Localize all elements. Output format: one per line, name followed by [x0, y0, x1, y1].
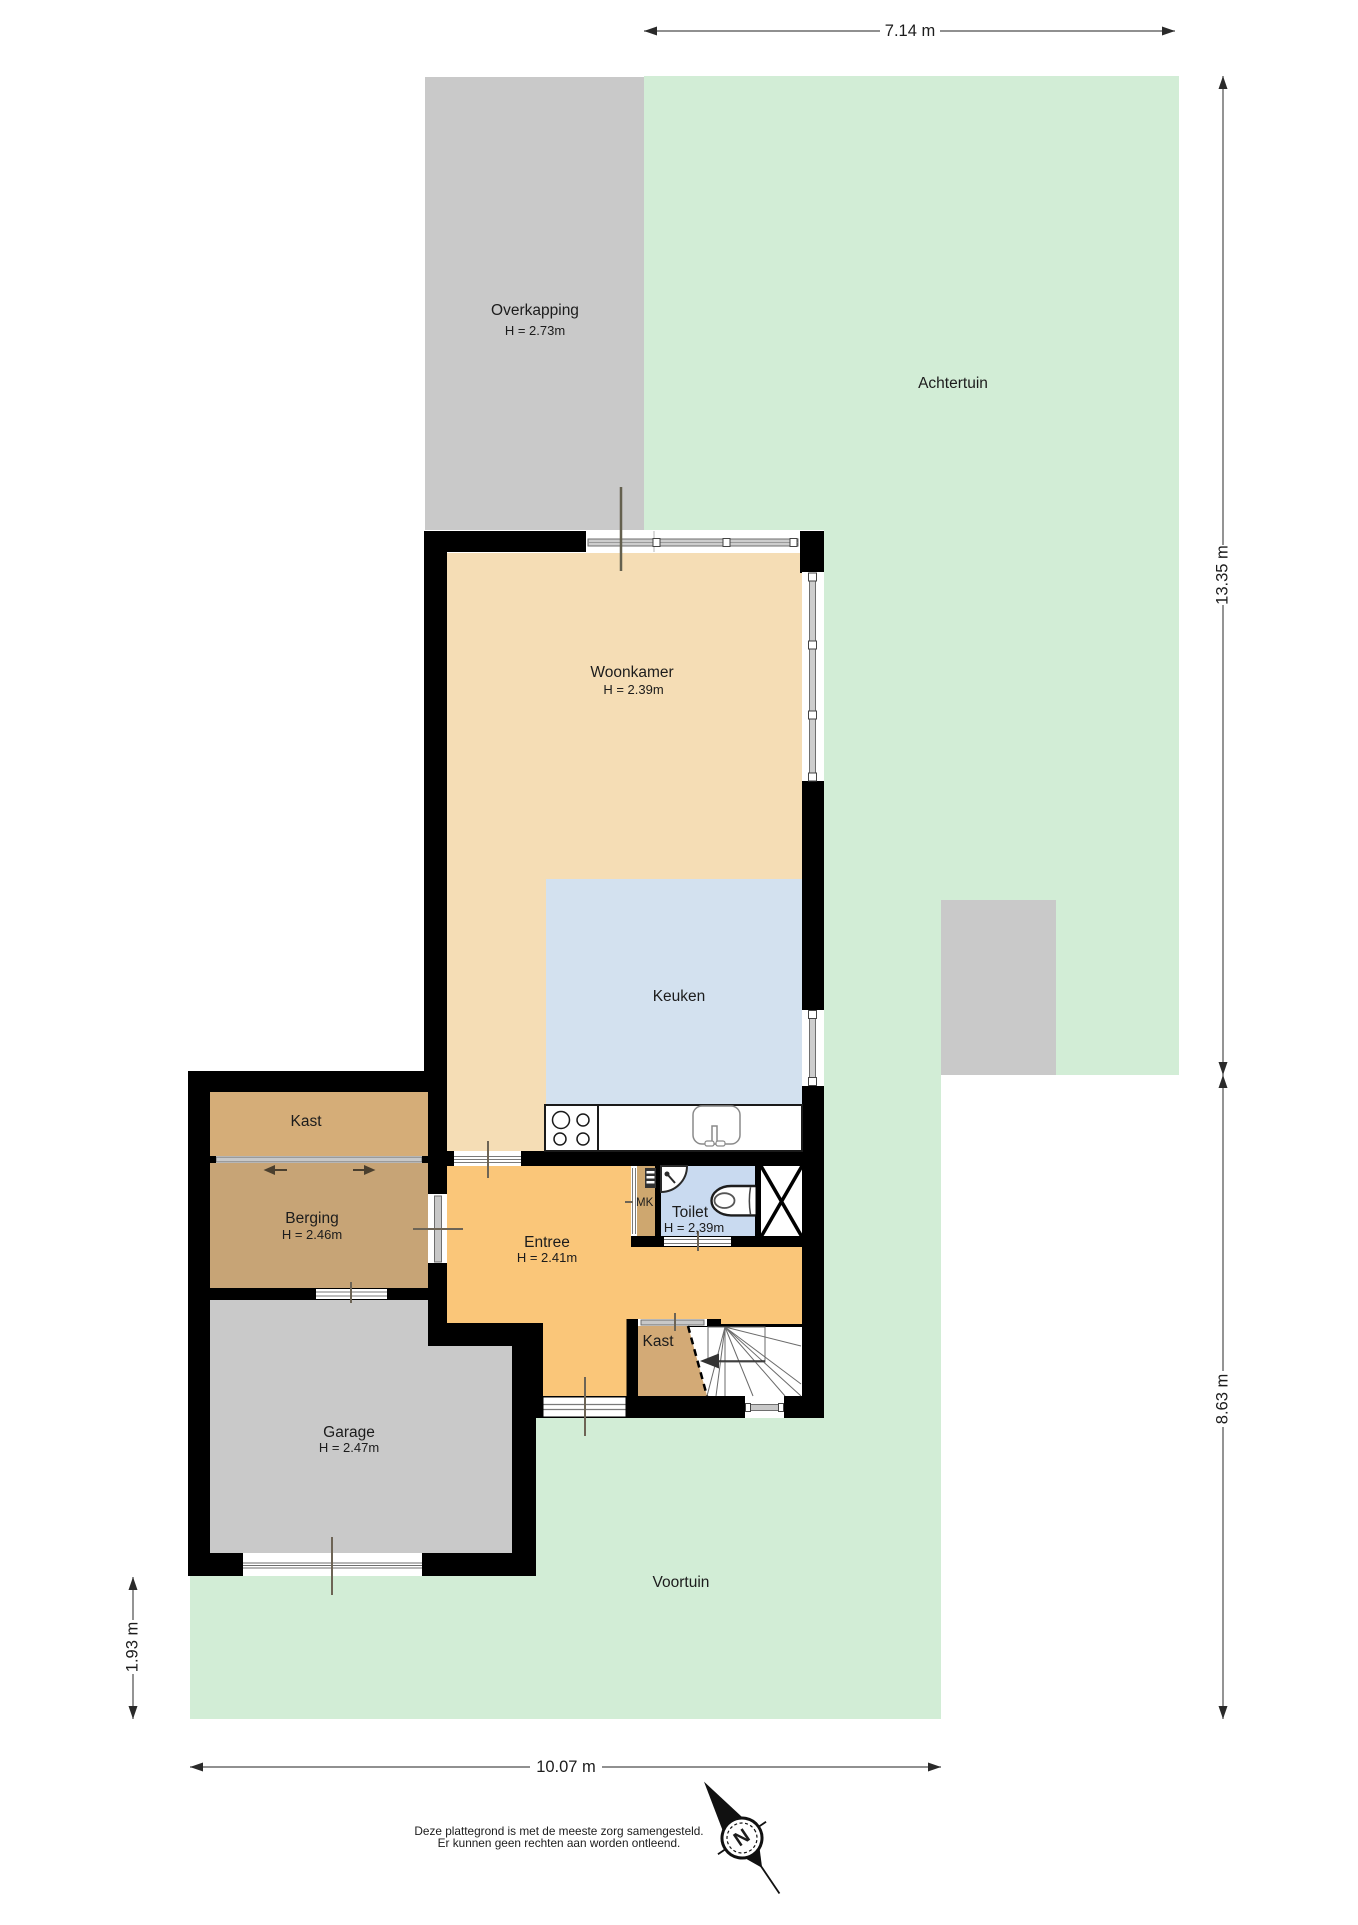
svg-text:Achtertuin: Achtertuin [918, 375, 988, 392]
svg-text:H = 2.73m: H = 2.73m [505, 323, 565, 338]
svg-text:Er kunnen geen rechten aan wor: Er kunnen geen rechten aan worden ontlee… [438, 1836, 681, 1850]
svg-text:8.63 m: 8.63 m [1213, 1374, 1231, 1424]
svg-text:Voortuin: Voortuin [653, 1574, 710, 1591]
svg-text:Kast: Kast [642, 1333, 674, 1350]
svg-text:H = 2.41m: H = 2.41m [517, 1250, 577, 1265]
svg-text:10.07 m: 10.07 m [536, 1758, 596, 1776]
svg-text:H = 2.39m: H = 2.39m [603, 682, 663, 697]
svg-text:Garage: Garage [323, 1424, 375, 1441]
svg-text:MK: MK [636, 1197, 654, 1209]
svg-text:7.14 m: 7.14 m [885, 22, 935, 40]
svg-text:Overkapping: Overkapping [491, 302, 579, 319]
svg-text:1.93 m: 1.93 m [123, 1622, 141, 1672]
svg-text:Berging: Berging [285, 1210, 338, 1227]
svg-text:H = 2.46m: H = 2.46m [282, 1227, 342, 1242]
svg-text:H = 2.47m: H = 2.47m [319, 1440, 379, 1455]
svg-text:H = 2,39m: H = 2,39m [664, 1220, 724, 1235]
svg-text:Entree: Entree [524, 1234, 570, 1251]
svg-text:Woonkamer: Woonkamer [590, 664, 673, 681]
svg-text:Toilet: Toilet [672, 1204, 709, 1221]
svg-text:Kast: Kast [290, 1113, 322, 1130]
svg-text:13.35 m: 13.35 m [1213, 545, 1231, 605]
svg-text:Keuken: Keuken [653, 988, 706, 1005]
